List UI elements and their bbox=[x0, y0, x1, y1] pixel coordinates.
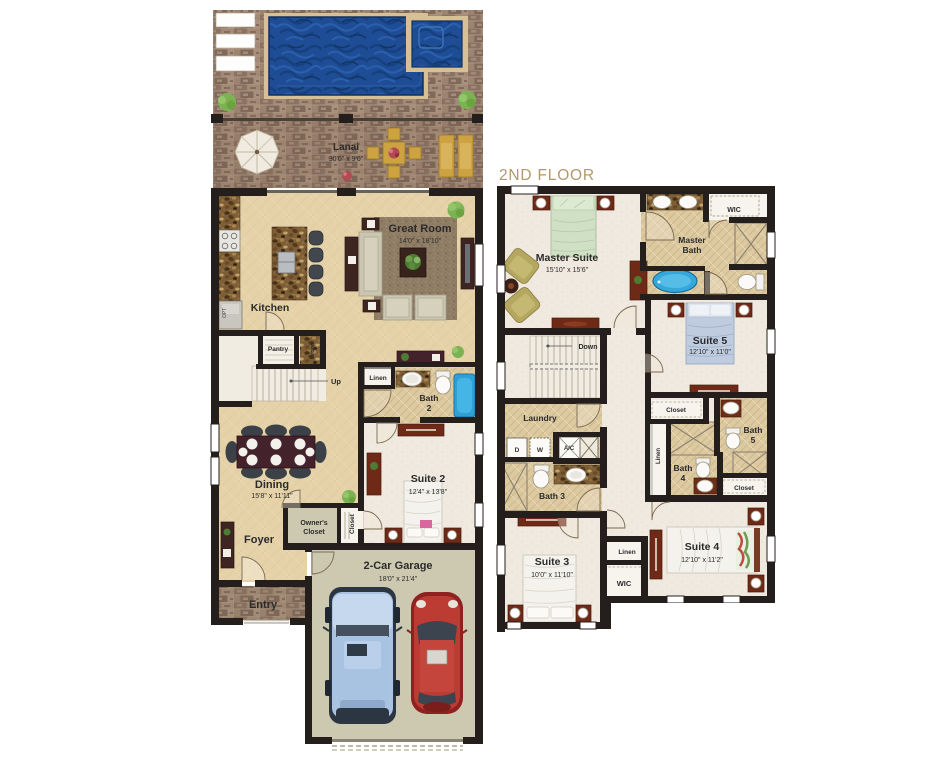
svg-text:Linen: Linen bbox=[618, 549, 635, 556]
svg-text:Suite 5: Suite 5 bbox=[693, 335, 728, 347]
svg-text:Bath: Bath bbox=[683, 245, 702, 255]
svg-text:30'0" x 9'0": 30'0" x 9'0" bbox=[329, 156, 364, 163]
svg-text:Down: Down bbox=[578, 344, 597, 351]
svg-text:Suite 3: Suite 3 bbox=[535, 556, 570, 568]
svg-text:Lanai: Lanai bbox=[333, 142, 359, 153]
svg-text:Closet: Closet bbox=[303, 529, 325, 536]
svg-text:Closet: Closet bbox=[666, 407, 687, 414]
svg-text:Great Room: Great Room bbox=[389, 223, 452, 235]
svg-text:Foyer: Foyer bbox=[244, 534, 275, 546]
svg-text:D: D bbox=[515, 447, 520, 454]
svg-text:15'8" x 11'11": 15'8" x 11'11" bbox=[251, 493, 293, 500]
svg-text:2ND FLOOR: 2ND FLOOR bbox=[499, 167, 595, 184]
svg-text:Closet: Closet bbox=[349, 513, 356, 534]
svg-text:Pantry: Pantry bbox=[268, 346, 289, 353]
svg-text:OPT: OPT bbox=[222, 308, 228, 318]
svg-text:Suite 4: Suite 4 bbox=[685, 541, 720, 553]
svg-text:Bath 3: Bath 3 bbox=[539, 491, 565, 501]
svg-text:2: 2 bbox=[427, 403, 432, 413]
svg-text:Bath: Bath bbox=[744, 425, 763, 435]
svg-text:Owner's: Owner's bbox=[300, 520, 327, 527]
svg-text:Master: Master bbox=[678, 235, 706, 245]
svg-text:14'0" x 18'10": 14'0" x 18'10" bbox=[399, 238, 442, 245]
svg-text:Laundry: Laundry bbox=[523, 413, 557, 423]
svg-text:Master Suite: Master Suite bbox=[536, 252, 599, 264]
svg-text:W: W bbox=[537, 447, 544, 454]
svg-text:WIC: WIC bbox=[727, 207, 741, 214]
svg-text:18'0" x 21'4": 18'0" x 21'4" bbox=[379, 576, 418, 583]
svg-text:4: 4 bbox=[681, 473, 686, 483]
svg-text:Bath: Bath bbox=[420, 393, 439, 403]
svg-text:2-Car Garage: 2-Car Garage bbox=[363, 560, 432, 572]
svg-text:Dining: Dining bbox=[255, 479, 289, 491]
svg-text:Kitchen: Kitchen bbox=[251, 302, 290, 314]
svg-text:10'0" x 11'10": 10'0" x 11'10" bbox=[531, 572, 573, 579]
svg-text:Closet: Closet bbox=[734, 485, 755, 492]
svg-text:Up: Up bbox=[331, 377, 341, 386]
svg-text:A/C: A/C bbox=[564, 446, 575, 452]
svg-text:WIC: WIC bbox=[617, 579, 632, 588]
svg-text:12'10" x 11'2": 12'10" x 11'2" bbox=[681, 557, 723, 564]
svg-text:12'4" x 13'8": 12'4" x 13'8" bbox=[409, 489, 448, 496]
svg-text:15'10" x 15'6": 15'10" x 15'6" bbox=[546, 267, 589, 274]
svg-text:5: 5 bbox=[751, 435, 756, 445]
svg-text:Entry: Entry bbox=[249, 599, 278, 611]
svg-text:Broom: Broom bbox=[310, 341, 316, 359]
svg-text:Linen: Linen bbox=[656, 448, 662, 464]
svg-text:Suite 2: Suite 2 bbox=[411, 473, 446, 485]
svg-text:Bath: Bath bbox=[674, 463, 693, 473]
svg-text:Linen: Linen bbox=[369, 375, 386, 382]
svg-text:12'10" x 11'0": 12'10" x 11'0" bbox=[689, 349, 731, 356]
